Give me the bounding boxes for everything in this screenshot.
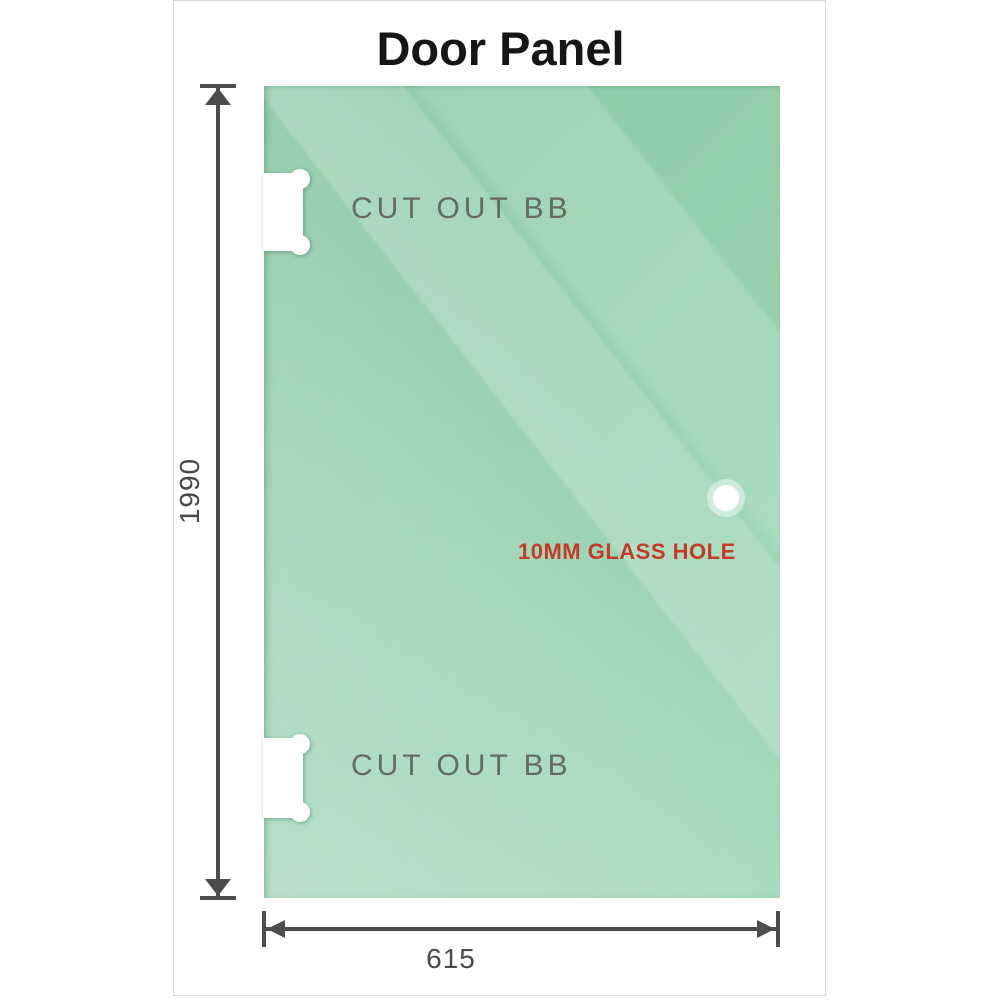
arrowhead-right-icon [757, 920, 775, 938]
arrowhead-up-icon [205, 88, 231, 105]
width-dimension-label: 615 [371, 943, 531, 975]
height-dimension-label: 1990 [175, 431, 205, 551]
height-dimension-line [216, 85, 220, 899]
door-panel-diagram: Door Panel CUT OUT BB CUT OUT BB 10MM GL… [0, 0, 1000, 1000]
width-dimension-tick-right [776, 911, 780, 947]
width-dimension-line [266, 927, 776, 931]
glass-panel: CUT OUT BB CUT OUT BB 10MM GLASS HOLE [264, 86, 780, 898]
cutout-bottom-label: CUT OUT BB [351, 751, 572, 781]
glass-hole-label: 10MM GLASS HOLE [518, 539, 736, 565]
arrowhead-down-icon [205, 879, 231, 896]
page-title: Door Panel [174, 21, 827, 76]
cutout-lobe-icon [290, 734, 310, 754]
glass-hole-icon [713, 485, 739, 511]
cutout-lobe-icon [290, 169, 310, 189]
cutout-lobe-icon [290, 802, 310, 822]
drawing-sheet: Door Panel CUT OUT BB CUT OUT BB 10MM GL… [173, 0, 826, 996]
cutout-lobe-icon [290, 235, 310, 255]
height-dimension-cap-bottom [200, 896, 236, 900]
arrowhead-left-icon [267, 920, 285, 938]
cutout-top-label: CUT OUT BB [351, 194, 572, 224]
hinge-cutout-top [263, 173, 303, 251]
hinge-cutout-bottom [263, 738, 303, 818]
